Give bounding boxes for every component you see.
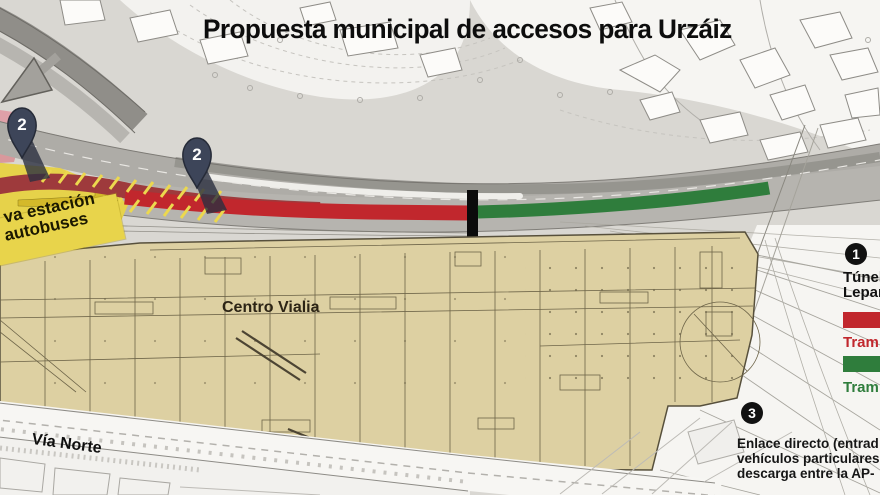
- legend-item3-line1: Enlace directo (entrad: [737, 436, 879, 451]
- page-title: Propuesta municipal de accesos para Urzá…: [203, 14, 732, 45]
- infographic-canvas: 2 2 Propuesta municipal de accesos para …: [0, 0, 880, 495]
- legend-red-label: Tram: [843, 334, 879, 351]
- legend-green-label: Tram: [843, 379, 879, 396]
- legend-green-swatch: [843, 356, 880, 372]
- pin-left-number: 2: [17, 115, 26, 134]
- legend-item3-line3: descarga entre la AP-: [737, 466, 875, 481]
- legend-item3-badge: 3: [741, 402, 763, 424]
- centro-vialia-label: Centro Vialia: [222, 299, 320, 317]
- legend-item3-line2: vehículos particulares: [737, 451, 880, 466]
- pin-right-number: 2: [192, 145, 201, 164]
- legend-item1-line2: Lepan: [843, 284, 880, 301]
- legend-red-swatch: [843, 312, 880, 328]
- legend-item1-badge: 1: [845, 243, 867, 265]
- route-divider: [467, 190, 478, 240]
